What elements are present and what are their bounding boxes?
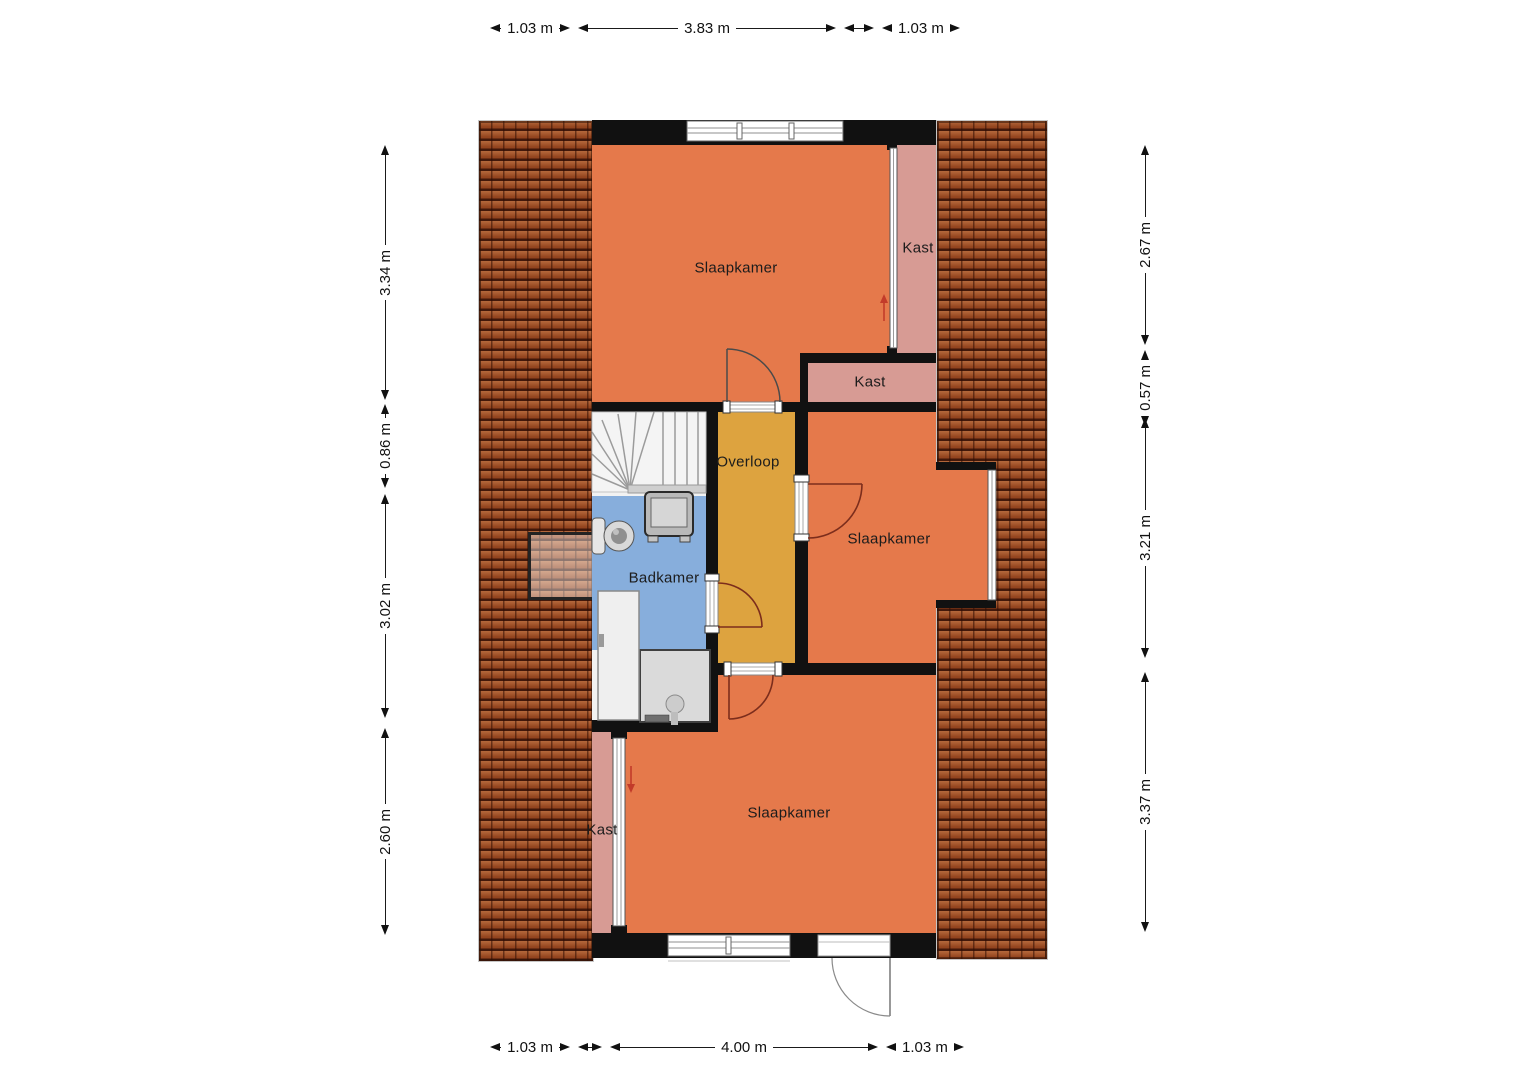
dimension-top-center: 3.83 m bbox=[578, 20, 836, 36]
room-label-kast-bottom: Kast bbox=[586, 822, 617, 839]
dimension-right-2: 0.57 m bbox=[1137, 350, 1153, 413]
dimension-bottom-center: 4.00 m bbox=[610, 1039, 878, 1055]
wall-kast-right-bottom bbox=[800, 353, 936, 363]
room-label-slaapkamer-middle: Slaapkamer bbox=[847, 531, 930, 548]
skylight-window bbox=[528, 532, 598, 600]
dimension-right-1: 2.67 m bbox=[1137, 145, 1153, 345]
dimension-label: 1.03 m bbox=[896, 1039, 954, 1056]
room-overloop bbox=[718, 412, 795, 663]
room-label-kast-middle: Kast bbox=[854, 374, 885, 391]
wall-overloop-right bbox=[795, 412, 808, 663]
room-label-kast-right: Kast bbox=[902, 240, 933, 257]
dimension-left-4: 2.60 m bbox=[377, 728, 393, 935]
dimension-label: 3.83 m bbox=[678, 20, 736, 37]
dimension-label: 3.02 m bbox=[377, 578, 394, 634]
dimension-top-left: 1.03 m bbox=[490, 20, 570, 36]
dimension-bottom-spacer bbox=[578, 1039, 602, 1055]
dimension-right-3: 3.21 m bbox=[1137, 418, 1153, 658]
dimension-right-4: 3.37 m bbox=[1137, 672, 1153, 932]
dimension-bottom-right: 1.03 m bbox=[886, 1039, 954, 1055]
dimension-label: 3.37 m bbox=[1137, 774, 1154, 830]
wall-exterior-bottom bbox=[592, 933, 936, 958]
room-label-badkamer: Badkamer bbox=[629, 570, 700, 587]
wall-exterior-top bbox=[592, 120, 936, 145]
wall-dormer-bottom bbox=[936, 600, 996, 608]
wall-overloop-bottom bbox=[718, 663, 936, 675]
dimension-top-spacer bbox=[844, 20, 874, 36]
wall-below-shower bbox=[592, 720, 718, 732]
dimension-label: 3.21 m bbox=[1137, 510, 1154, 566]
room-slaapkamer-middle-dormer bbox=[936, 470, 988, 600]
dimension-label: 3.34 m bbox=[377, 245, 394, 301]
dimension-left-3: 3.02 m bbox=[377, 494, 393, 718]
dimension-label: 0.86 m bbox=[377, 418, 394, 474]
dimension-label: 2.67 m bbox=[1137, 217, 1154, 273]
room-label-slaapkamer-bottom: Slaapkamer bbox=[747, 805, 830, 822]
dimension-top-right: 1.03 m bbox=[882, 20, 952, 36]
dimension-bottom-left: 1.03 m bbox=[490, 1039, 570, 1055]
room-label-slaapkamer-top: Slaapkamer bbox=[694, 260, 777, 277]
floorplan-page: Slaapkamer Kast Kast Overloop Slaapkamer… bbox=[0, 0, 1528, 1080]
dimension-label: 1.03 m bbox=[501, 20, 559, 37]
dimension-label: 2.60 m bbox=[377, 804, 394, 860]
room-label-overloop: Overloop bbox=[716, 454, 779, 471]
dimension-label: 1.03 m bbox=[892, 20, 950, 37]
dimension-left-1: 3.34 m bbox=[377, 145, 393, 400]
floorplan: Slaapkamer Kast Kast Overloop Slaapkamer… bbox=[478, 118, 1048, 962]
dimension-label: 1.03 m bbox=[501, 1039, 559, 1056]
dimension-left-2: 0.86 m bbox=[377, 404, 393, 488]
dimension-label: 0.57 m bbox=[1137, 360, 1154, 416]
wall-dormer-top bbox=[936, 462, 996, 470]
dimension-label: 4.00 m bbox=[715, 1039, 773, 1056]
wall-main-horizontal bbox=[592, 402, 936, 412]
room-slaapkamer-bottom-left bbox=[625, 732, 718, 933]
wall-kast-middle-left bbox=[800, 353, 808, 402]
